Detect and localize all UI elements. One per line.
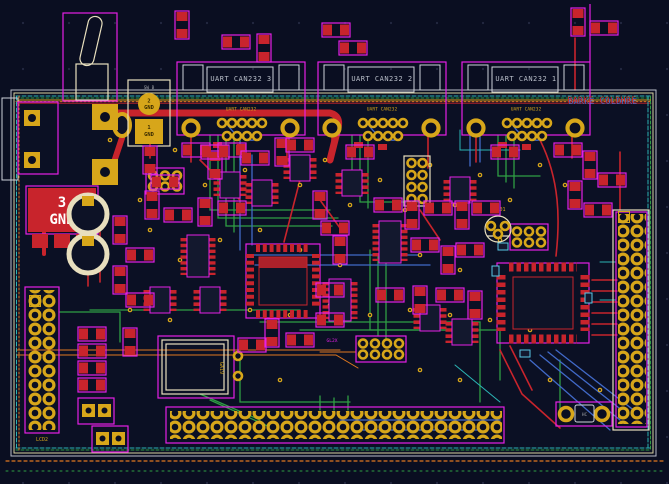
crystal-label: HC — [582, 412, 588, 418]
connector-3-label: UART CAN232 3 — [210, 75, 271, 83]
right-pin-header[interactable] — [613, 210, 649, 430]
connector-1-label: UART CAN232 1 — [495, 75, 556, 83]
pcb-layout: SW_B 2 GND 1 GND 3 GND UART CAN232 3 UAR… — [0, 0, 669, 484]
pad2-number: 2 — [147, 99, 150, 105]
pcb-editor-canvas[interactable]: SW_B 2 GND 1 GND 3 GND UART CAN232 3 UAR… — [0, 0, 669, 484]
connector-1-sublabel: UART CAN232 — [511, 107, 542, 113]
power-switch-label: SW_B — [144, 85, 155, 91]
bottom-pin-header[interactable] — [166, 407, 504, 443]
gnd-pin-number: 3 — [58, 195, 66, 211]
pin-header-pads — [28, 290, 56, 430]
left-pin-header[interactable]: LCD2 — [25, 287, 59, 443]
board-title: BARKE COLDHRE BARKE COLDHRE — [567, 95, 637, 107]
svg-text:BARKE COLDHRE: BARKE COLDHRE — [567, 95, 636, 105]
left-header-label: LCD2 — [36, 437, 48, 443]
pad1-net: GND — [144, 132, 154, 138]
pin-header-pads — [618, 214, 646, 424]
connector-2-sublabel: UART CAN232 — [367, 107, 398, 113]
pin-header-pads — [170, 411, 502, 439]
lcd-label: GA19 — [218, 362, 224, 374]
pad2-net: GND — [144, 105, 154, 111]
connector-3-sublabel: UART CAN232 — [226, 107, 257, 113]
connector-2-label: UART CAN232 2 — [351, 75, 412, 83]
pad1-number: 1 — [147, 125, 150, 131]
jumper-label: GL2X — [326, 338, 337, 344]
